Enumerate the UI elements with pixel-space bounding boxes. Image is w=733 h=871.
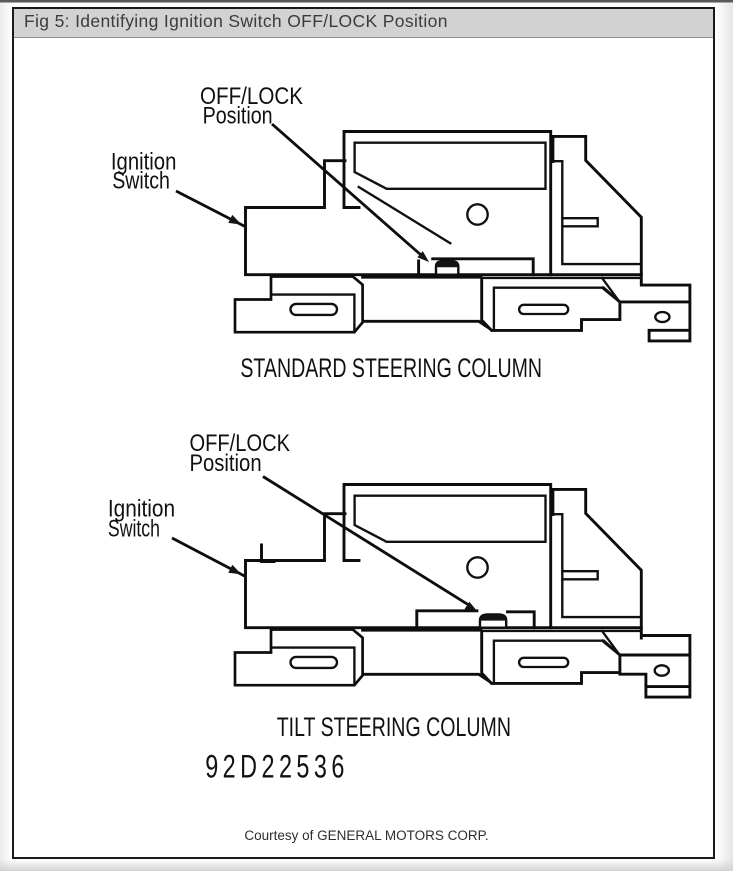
svg-text:Position: Position [203,103,273,130]
svg-text:Switch: Switch [112,167,170,194]
svg-text:STANDARD STEERING COLUMN: STANDARD STEERING COLUMN [240,353,542,383]
svg-text:TILT STEERING COLUMN: TILT STEERING COLUMN [277,712,511,742]
svg-text:Position: Position [190,450,262,477]
svg-text:Switch: Switch [108,515,160,542]
svg-text:92D22536: 92D22536 [205,748,349,785]
